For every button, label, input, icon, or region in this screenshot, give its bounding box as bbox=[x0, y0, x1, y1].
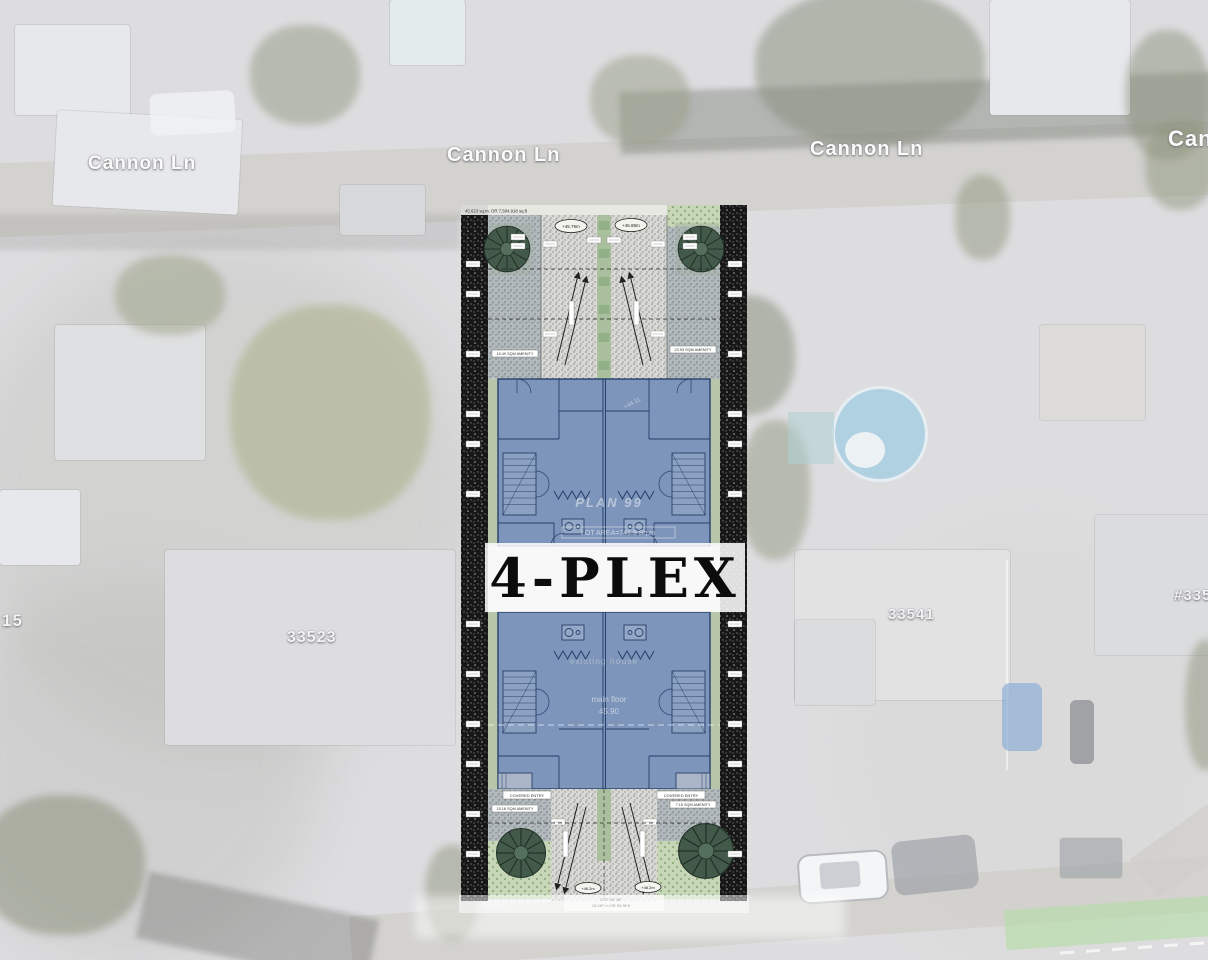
tree-canopy bbox=[955, 175, 1010, 260]
four-plex-banner-text: 4-PLEX bbox=[489, 551, 741, 605]
amenity-label-bottom-right: 7.15 SQM AMENITY bbox=[676, 803, 711, 807]
site-plan-overlay: 45.623 sq.m. OR 7,584.918 sq.ft bbox=[459, 201, 749, 913]
garage-roof bbox=[340, 185, 425, 235]
garage-roof bbox=[795, 620, 875, 705]
plan-number-text: PLAN 99 bbox=[575, 495, 642, 510]
tree-canopy bbox=[590, 55, 690, 145]
address-label-15: 15 bbox=[2, 611, 23, 631]
street-label-cannon-ln-2: Cannon Ln bbox=[447, 144, 560, 167]
house-roof bbox=[390, 0, 465, 65]
tree-canopy bbox=[0, 795, 145, 935]
side-landscape-strip bbox=[488, 379, 498, 546]
street-label-cannon-ln-partial: Can bbox=[1168, 126, 1208, 152]
address-label-33541: 33541 bbox=[888, 606, 935, 623]
covered-entry-right: COVERED ENTRY bbox=[664, 793, 699, 798]
street-label-cannon-ln-1: Cannon Ln bbox=[88, 153, 196, 175]
house-roof bbox=[1040, 325, 1145, 420]
grade-text-bottom-right: +46.2m bbox=[641, 885, 655, 890]
grade-text-top-right: +45.88m bbox=[622, 223, 640, 228]
swimming-pool bbox=[832, 386, 928, 482]
four-plex-banner: 4-PLEX bbox=[485, 543, 745, 612]
white-van bbox=[149, 90, 236, 136]
tarp bbox=[788, 412, 834, 464]
grade-text-top-left: +45.79m bbox=[562, 224, 580, 229]
amenity-label-top-left: 15.49 SQM AMENITY bbox=[497, 352, 534, 356]
tree-canopy bbox=[115, 255, 225, 335]
hatched-strip-left bbox=[461, 205, 488, 901]
existing-house-text: existing house bbox=[570, 656, 638, 666]
side-landscape-strip bbox=[488, 612, 498, 789]
house-roof bbox=[990, 0, 1130, 115]
house-roof bbox=[1060, 838, 1122, 878]
lot-area-text: LOT AREA=741.9 Sq.m bbox=[581, 530, 655, 537]
grade-text-bottom-left: +46.2m bbox=[581, 886, 595, 891]
main-floor-label: main floor bbox=[591, 695, 626, 704]
tree-canopy bbox=[755, 0, 985, 145]
covered-entry-left: COVERED ENTRY bbox=[510, 793, 545, 798]
address-label-335-partial: #335 bbox=[1174, 587, 1208, 604]
side-landscape-strip bbox=[710, 612, 720, 789]
gray-car bbox=[890, 834, 979, 896]
street-label-cannon-ln-3: Cannon Ln bbox=[810, 138, 923, 161]
lot-note-text: 45.623 sq.m. OR 7,584.918 sq.ft bbox=[465, 209, 528, 214]
house-roof bbox=[1095, 515, 1208, 655]
house-roof-33523 bbox=[165, 550, 455, 745]
car-windshield bbox=[819, 861, 861, 890]
blue-car bbox=[1002, 683, 1042, 751]
amenity-label-top-right: 23.93 SQM AMENITY bbox=[675, 348, 712, 352]
large-tree-canopy bbox=[230, 305, 430, 520]
shed-roof bbox=[0, 490, 80, 565]
house-roof bbox=[55, 325, 205, 460]
aerial-map-canvas[interactable]: Cannon Ln Cannon Ln Cannon Ln Can 15 335… bbox=[0, 0, 1208, 960]
tree-canopy bbox=[250, 25, 360, 125]
pool-cover-blob bbox=[845, 432, 885, 468]
main-floor-value: 45.90 bbox=[599, 707, 620, 716]
side-landscape-strip bbox=[710, 379, 720, 546]
dark-car bbox=[1070, 700, 1094, 764]
amenity-label-bottom-left: 15.16 SQM AMENITY bbox=[497, 807, 534, 811]
bottom-fade bbox=[459, 895, 749, 913]
house-roof bbox=[15, 25, 130, 115]
address-label-33523: 33523 bbox=[287, 629, 337, 647]
